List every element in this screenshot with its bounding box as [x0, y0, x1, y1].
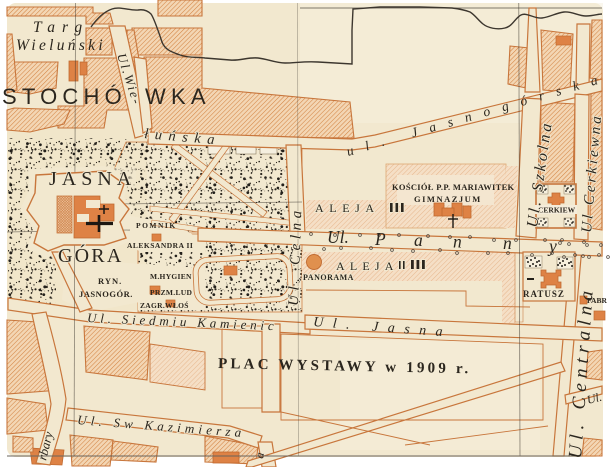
- svg-text:RATUSZ: RATUSZ: [523, 289, 565, 299]
- svg-text:GÓRA: GÓRA: [58, 243, 123, 267]
- svg-text:n: n: [453, 232, 462, 252]
- svg-text:n: n: [503, 233, 512, 253]
- svg-text:JASNA: JASNA: [49, 168, 136, 190]
- svg-text:y: y: [547, 236, 557, 256]
- svg-text:M.HYGIEN: M.HYGIEN: [150, 272, 192, 281]
- svg-text:KOŚCIÓŁ P.P. MARIAWITEK: KOŚCIÓŁ P.P. MARIAWITEK: [392, 182, 515, 192]
- svg-text:PANORAMA: PANORAMA: [303, 273, 354, 282]
- svg-text:PRZM.LUD: PRZM.LUD: [150, 288, 192, 297]
- svg-text:Targ: Targ: [33, 19, 89, 36]
- svg-text:WKA: WKA: [145, 84, 211, 109]
- svg-text:Ul.: Ul.: [327, 227, 349, 247]
- svg-text:ALEKSANDRA II: ALEKSANDRA II: [127, 241, 193, 250]
- svg-text:ALEJA: ALEJA: [315, 201, 380, 215]
- svg-text:STOCHÓ: STOCHÓ: [2, 84, 127, 109]
- svg-text:RYN.: RYN.: [98, 276, 122, 286]
- svg-text:a: a: [414, 230, 423, 250]
- svg-text:POMNIK: POMNIK: [136, 221, 177, 230]
- svg-text:JASNOGÓR.: JASNOGÓR.: [79, 289, 133, 299]
- svg-text:P: P: [374, 229, 386, 249]
- svg-text:ZAGR.WŁOŚ: ZAGR.WŁOŚ: [140, 300, 189, 310]
- svg-text:GIMNAZJUM: GIMNAZJUM: [414, 194, 482, 204]
- svg-text:Wieluński: Wieluński: [16, 37, 106, 54]
- svg-text:ALEJA: ALEJA: [336, 259, 399, 273]
